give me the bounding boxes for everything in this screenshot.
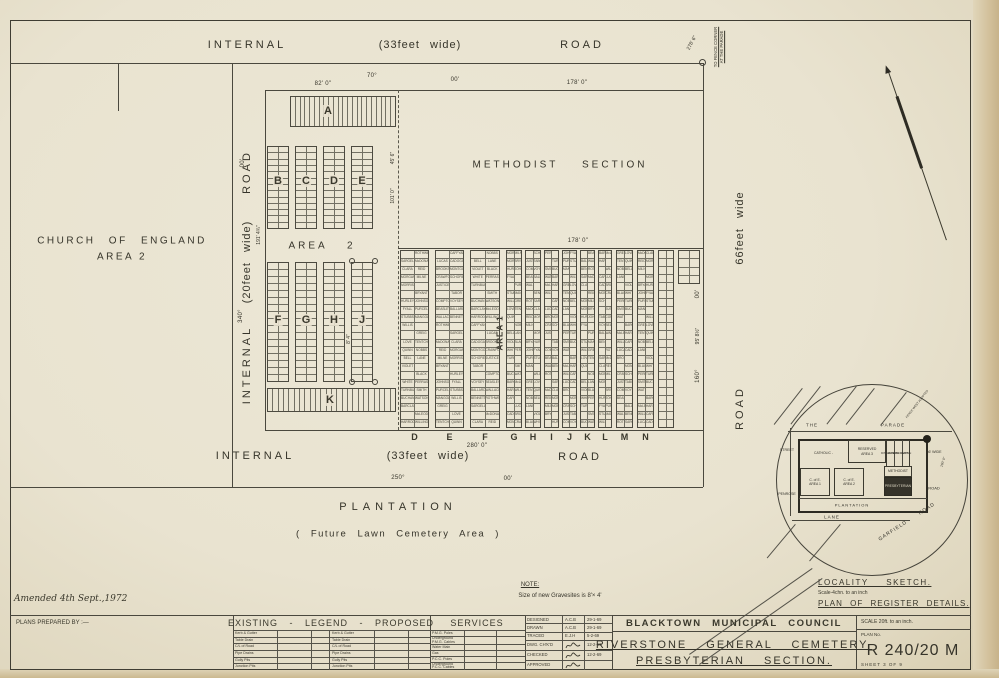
street-penrose: PENROSE (778, 492, 796, 496)
locality-methodist: METHODIST (884, 466, 912, 477)
council-row: BLACKTOWN MUNICIPAL COUNCIL (612, 616, 856, 631)
signature-mark (563, 651, 585, 660)
left-boundary-dim: 191' 4¾" (256, 225, 262, 244)
locality-road: ROAD (928, 486, 940, 491)
left-road-internal: INTERNAL (241, 326, 253, 404)
top-road-width: (33feet wide) (379, 39, 462, 51)
methodist-south-line (398, 248, 703, 249)
register-details-title: PLAN OF REGISTER DETAILS. (818, 599, 970, 608)
right-bearing-deg: 160° (695, 369, 701, 383)
fence-corner-dot (923, 435, 931, 443)
signature-mark (563, 661, 585, 670)
register-column-M: M (621, 432, 629, 442)
sheet-label: SHEET 3 OF 9 (861, 662, 903, 667)
amended-note: Amended 4th Sept.,1972 (14, 594, 127, 604)
paper-edge-right (973, 0, 999, 678)
plantation-label: PLANTATION (339, 501, 456, 513)
right-bearing-min: 00' (695, 290, 701, 299)
section-letter-J: J (358, 314, 366, 326)
note-body: Size of new Gravesites is 8'× 4' (518, 593, 601, 599)
block-bottom-fence (265, 430, 703, 431)
corner-note-line2: AT THE PARADE (719, 27, 725, 67)
section-title: PRESBYTERIAN SECTION. (636, 655, 832, 667)
register-column-E: E (446, 432, 452, 442)
legend-header: EXISTING - LEGEND - PROPOSED (228, 618, 434, 628)
legend-table: Kerb & GutterKerb & GutterTable DrainTab… (233, 630, 430, 670)
street-lane: LANE (824, 515, 840, 520)
section-letter-C: C (301, 175, 311, 187)
plan-no-label: PLAN No. (861, 632, 881, 637)
register-column-J: J (567, 432, 572, 442)
signature-mark (563, 641, 585, 650)
locality-scale: Scale-4chn. to an inch (818, 590, 867, 596)
register-column-H: H (530, 432, 537, 442)
bottom-road-road: ROAD (558, 451, 602, 463)
plan-number: R 240/20 M (867, 642, 960, 660)
section-letter-K: K (325, 394, 335, 406)
west-street-line (790, 428, 791, 516)
section-letter-A: A (323, 105, 333, 117)
right-road-width: 66feet wide (734, 191, 746, 264)
survey-plan-sheet: INTERNAL (33feet wide) ROAD 278' 6" TO F… (0, 0, 999, 678)
project-title: RIVERSTONE GENERAL CEMETERY. (596, 639, 872, 651)
prepared-by-label: PLANS PREPARED BY :— (16, 620, 89, 626)
entry-line (118, 63, 119, 111)
corner-note: TO FENCE CORNER AT THE PARADE (713, 27, 725, 67)
top-road-road: ROAD (560, 39, 604, 51)
plot-strip (295, 146, 317, 229)
section-letter-E: E (357, 175, 366, 187)
section-letter-F: F (274, 314, 283, 326)
street-street: STREET (780, 448, 794, 452)
bottom-road-internal: INTERNAL (216, 450, 294, 462)
register-column-G: G (510, 432, 517, 442)
left-road-road: ROAD (241, 150, 253, 194)
plot-strip: NOBBSBELLLANEVIOLETBLACKWHITEPERRASTURNB… (470, 250, 500, 428)
plot-strip: PERRASTURNBULLSMITHBUCHANWATSONBARCLAYMc… (544, 250, 559, 428)
top-bearing-min: 00' (451, 77, 460, 83)
right-boundary-dim: 95' 8½" (695, 328, 701, 345)
scale-underline (856, 629, 971, 630)
bottom-bearing-min: 00' (504, 476, 513, 482)
street-the: THE (806, 423, 818, 428)
plot-strip: GREIGLOVETENTCHQUINNNOBBSBELLLANEVIOLETB… (616, 250, 633, 428)
plot-strip (658, 250, 674, 428)
locality-catholic: CATHOLIC - (799, 440, 848, 466)
plantation-sub-label: ( Future Lawn Cemetery Area ) (296, 529, 500, 540)
locality-presbyterian: PRESBYTERIAN (884, 477, 912, 496)
top-road-internal: INTERNAL (208, 39, 286, 51)
area-divider-dashed (398, 90, 399, 430)
locality-plantation-line (799, 498, 927, 499)
dim-methodist-top: 178' 0" (567, 80, 587, 86)
plot-strip (351, 146, 373, 229)
left-road-line (232, 63, 233, 487)
right-road-road: ROAD (734, 386, 746, 430)
plot-strip: SCHOFIELDJUSTICETABORCOMPTONVOYSEYBEASLE… (525, 250, 541, 428)
right-road-line (703, 63, 704, 487)
left-bearing-min: 00' (240, 159, 246, 168)
left-road-width: (20feet wide) (241, 221, 253, 304)
bottom-road-line (10, 487, 703, 488)
note-title: NOTE: (521, 582, 539, 588)
section-letter-D: D (329, 175, 339, 187)
register-column-I: I (550, 432, 553, 442)
scale-label: SCALE 20ft. to an inch. (861, 619, 913, 625)
area2-label: AREA 2 (288, 241, 355, 252)
street-parade: PARADE (881, 423, 905, 428)
dim-register-bottom: 280' 0" (467, 443, 487, 449)
section-letter-B: B (273, 175, 283, 187)
parade-north-line (788, 431, 952, 432)
locality-jewish: JEWISH (901, 451, 912, 455)
plot-strip: ROTHWELLSARGELLMcDONALDCLARAREIDMORGANMI… (400, 250, 429, 428)
register-column-K: K (584, 432, 591, 442)
register-column-F: F (482, 432, 488, 442)
left-bearing-deg: 340° (238, 309, 244, 323)
locality-coe1: C. of E.AREA 1 (800, 468, 830, 496)
locality-title: LOCALITY SKETCH. (818, 578, 931, 587)
bottom-bearing-deg: 250° (391, 475, 405, 481)
locality-plantation: PLANTATION (835, 503, 870, 508)
plot-strip (678, 250, 700, 284)
plot-strip: BARCLAYMcLEODHARRODWILLINGCAFFYANLUCASCA… (598, 250, 612, 428)
plot-strip: CAFFYANLUCASCADOGANBROOKSMONTGOMERYCRAWF… (435, 250, 464, 428)
dim-inner-1: 45' 6" (390, 152, 396, 164)
dim-register-top: 178' 0" (568, 238, 588, 244)
council-underline (612, 631, 856, 632)
section-letter-G: G (301, 314, 312, 326)
plot-strip (267, 146, 289, 229)
plot-strip: MORGANMILNEMORRISBRYANTHURLEYJOHNSONFYAL… (506, 250, 522, 428)
dim-inner-2: 101' 0" (390, 188, 396, 203)
corner-note-line1: TO FENCE CORNER (713, 27, 719, 67)
bottom-road-width: (33feet wide) (387, 450, 470, 462)
plot-strip: JOHNSONFYALLPURCELLSTUBBSMANGOLDWILLISGR… (562, 250, 577, 428)
plot-strip: McDONALDCLARAREIDMORGANMILNEMORRISBRYANT… (637, 250, 654, 428)
church-label: CHURCH OF ENGLAND (37, 236, 207, 247)
block-top-fence (265, 90, 703, 91)
church-area-label: AREA 2 (97, 252, 147, 263)
top-road-line (10, 63, 703, 64)
register-column-D: D (411, 432, 418, 442)
top-bearing-deg: 70° (367, 73, 377, 79)
lane-south-line (792, 520, 910, 521)
dim-a-strip: 82' 0" (315, 81, 332, 87)
section-letter-H: H (329, 314, 339, 326)
plot-strip (290, 96, 396, 127)
methodist-section-label: METHODIST SECTION (473, 160, 648, 171)
plot-strip: BEASLEYBALLARDWALLACEBENNETTROTHWELLSARG… (580, 250, 595, 428)
block-left-fence (265, 90, 266, 430)
services-header: SERVICES (450, 618, 503, 628)
register-column-N: N (642, 432, 649, 442)
paper-edge-bottom (0, 669, 999, 678)
services-table: P.M.G. PolesUnderground P.M.G. CablesWat… (430, 630, 525, 670)
plot-strip (323, 146, 345, 229)
register-column-L: L (602, 432, 608, 442)
locality-coe2: C. of E.AREA 2 (834, 468, 864, 496)
locality-road-width: 66' WIDE (926, 450, 941, 454)
